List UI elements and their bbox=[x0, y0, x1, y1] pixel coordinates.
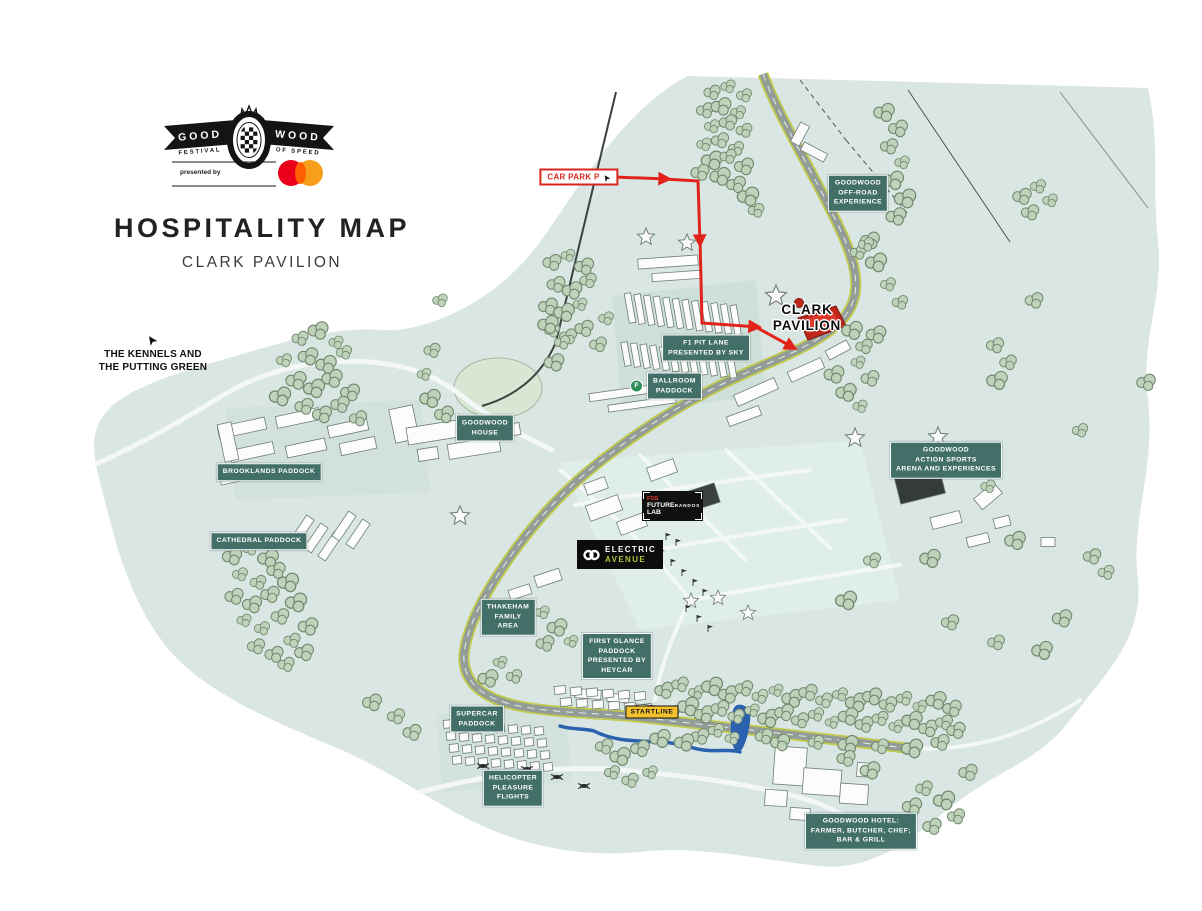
label-f1-pit-lane: F1 PIT LANE PRESENTED BY SKY bbox=[662, 334, 750, 361]
building bbox=[514, 749, 524, 758]
label-goodwood-hotel: GOODWOOD HOTEL: FARMER, BUTCHER, CHEF; B… bbox=[805, 813, 917, 850]
building bbox=[1041, 538, 1055, 547]
randox-text: RANDOX bbox=[675, 504, 701, 509]
building bbox=[540, 751, 550, 760]
hospitality-map-page: GOOD WOOD FESTIVAL OF SPEED presented by… bbox=[0, 0, 1202, 911]
goodwood-festival-of-speed-logo: GOOD WOOD FESTIVAL OF SPEED presented by bbox=[158, 96, 348, 196]
building bbox=[508, 725, 518, 734]
page-title: HOSPITALITY MAP bbox=[84, 213, 440, 244]
tree-icon bbox=[433, 294, 448, 307]
building bbox=[524, 738, 534, 747]
building bbox=[465, 757, 475, 766]
label-car-park-p: CAR PARK P ➤ bbox=[539, 169, 618, 186]
corner-bracket-icon bbox=[643, 492, 650, 499]
label-startline: STARTLINE bbox=[625, 706, 678, 719]
cursor-arrow-icon: ➤ bbox=[602, 172, 613, 182]
label-thakeham-family-area: THAKEHAM FAMILY AREA bbox=[481, 599, 536, 636]
mastercard-icon bbox=[278, 160, 323, 186]
building bbox=[634, 691, 646, 700]
building bbox=[576, 699, 588, 708]
building bbox=[504, 760, 514, 769]
building bbox=[618, 690, 630, 699]
logo-festival: FESTIVAL bbox=[178, 147, 221, 156]
label-ballroom-paddock-group: F BALLROOM PADDOCK bbox=[630, 372, 702, 399]
building bbox=[554, 685, 566, 694]
building bbox=[511, 737, 521, 746]
building bbox=[586, 688, 598, 697]
building bbox=[560, 697, 572, 706]
building bbox=[570, 687, 582, 696]
label-offroad-experience: GOODWOOD OFF-ROAD EXPERIENCE bbox=[828, 175, 888, 212]
label-first-glance-paddock: FIRST GLANCE PADDOCK PRESENTED BY HEYCAR bbox=[582, 633, 652, 679]
label-goodwood-house: GOODWOOD HOUSE bbox=[456, 414, 514, 441]
label-action-sports: GOODWOOD ACTION SPORTS ARENA AND EXPERIE… bbox=[890, 442, 1002, 479]
avenue-text: AVENUE bbox=[605, 555, 656, 564]
corner-bracket-icon bbox=[695, 513, 702, 520]
building bbox=[534, 727, 544, 736]
building bbox=[498, 736, 508, 745]
building bbox=[449, 744, 459, 753]
electric-text: ELECTRIC bbox=[605, 545, 656, 554]
label-electric-avenue: ELECTRIC AVENUE bbox=[577, 540, 663, 569]
label-cathedral-paddock: CATHEDRAL PADDOCK bbox=[210, 532, 307, 550]
building bbox=[488, 747, 498, 756]
corner-bracket-icon bbox=[695, 492, 702, 499]
building bbox=[459, 733, 469, 742]
building bbox=[491, 759, 501, 768]
building bbox=[764, 789, 787, 806]
building bbox=[501, 748, 511, 757]
label-kennels-putting-green: THE KENNELS AND THE PUTTING GREEN bbox=[99, 348, 207, 374]
building bbox=[446, 732, 456, 741]
corner-bracket-icon bbox=[643, 513, 650, 520]
building bbox=[485, 735, 495, 744]
building bbox=[462, 745, 472, 754]
building bbox=[537, 739, 547, 748]
building bbox=[608, 701, 620, 710]
building bbox=[527, 750, 537, 759]
building bbox=[802, 768, 842, 797]
presented-by-text: presented by bbox=[180, 169, 221, 176]
page-subtitle: CLARK PAVILION bbox=[84, 254, 440, 272]
building bbox=[452, 756, 462, 765]
label-clark-pavilion: CLARK PAVILION bbox=[773, 302, 841, 334]
crest-icon bbox=[230, 106, 268, 166]
label-ballroom-paddock: BALLROOM PADDOCK bbox=[647, 372, 702, 399]
label-fos-future-lab: FOS FUTURE LAB RANDOX bbox=[642, 491, 703, 521]
building bbox=[472, 734, 482, 743]
building bbox=[602, 689, 614, 698]
future-lab-text: FUTURE LAB bbox=[647, 502, 675, 516]
logo-of-speed: OF SPEED bbox=[276, 147, 321, 156]
building bbox=[521, 726, 531, 735]
building bbox=[592, 700, 604, 709]
label-brooklands-paddock: BROOKLANDS PADDOCK bbox=[217, 463, 322, 481]
label-helicopter-flights: HELICOPTER PLEASURE FLIGHTS bbox=[483, 770, 543, 807]
building bbox=[839, 783, 868, 805]
building bbox=[475, 746, 485, 755]
label-supercar-paddock: SUPERCAR PADDOCK bbox=[450, 705, 504, 732]
facilities-icon: F bbox=[630, 380, 643, 393]
electric-avenue-logo-icon bbox=[583, 547, 600, 563]
building bbox=[773, 746, 808, 786]
car-park-text: CAR PARK P bbox=[547, 173, 599, 182]
presented-by-block: presented by bbox=[172, 162, 276, 186]
building bbox=[417, 447, 439, 462]
building bbox=[543, 763, 553, 772]
tree-icon bbox=[947, 809, 964, 824]
